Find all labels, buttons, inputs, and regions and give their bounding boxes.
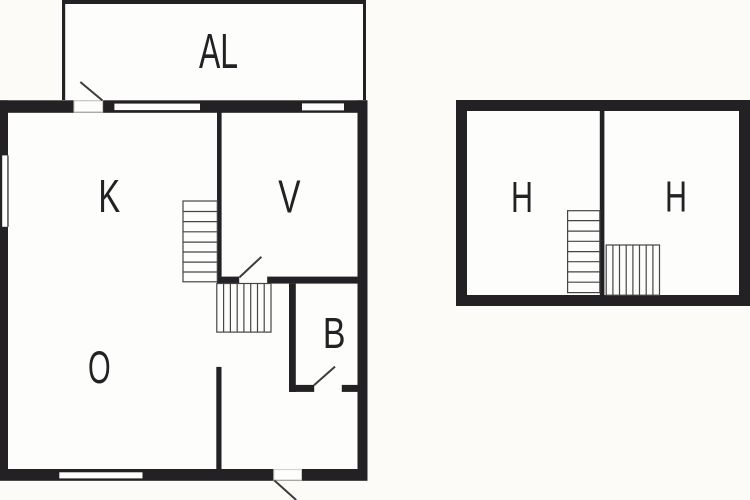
svg-text:K: K [98,172,120,223]
svg-text:O: O [88,343,111,394]
svg-text:AL: AL [199,23,238,79]
svg-text:H: H [665,172,687,221]
svg-text:B: B [323,309,346,358]
svg-text:H: H [511,173,533,222]
svg-text:V: V [278,171,300,223]
